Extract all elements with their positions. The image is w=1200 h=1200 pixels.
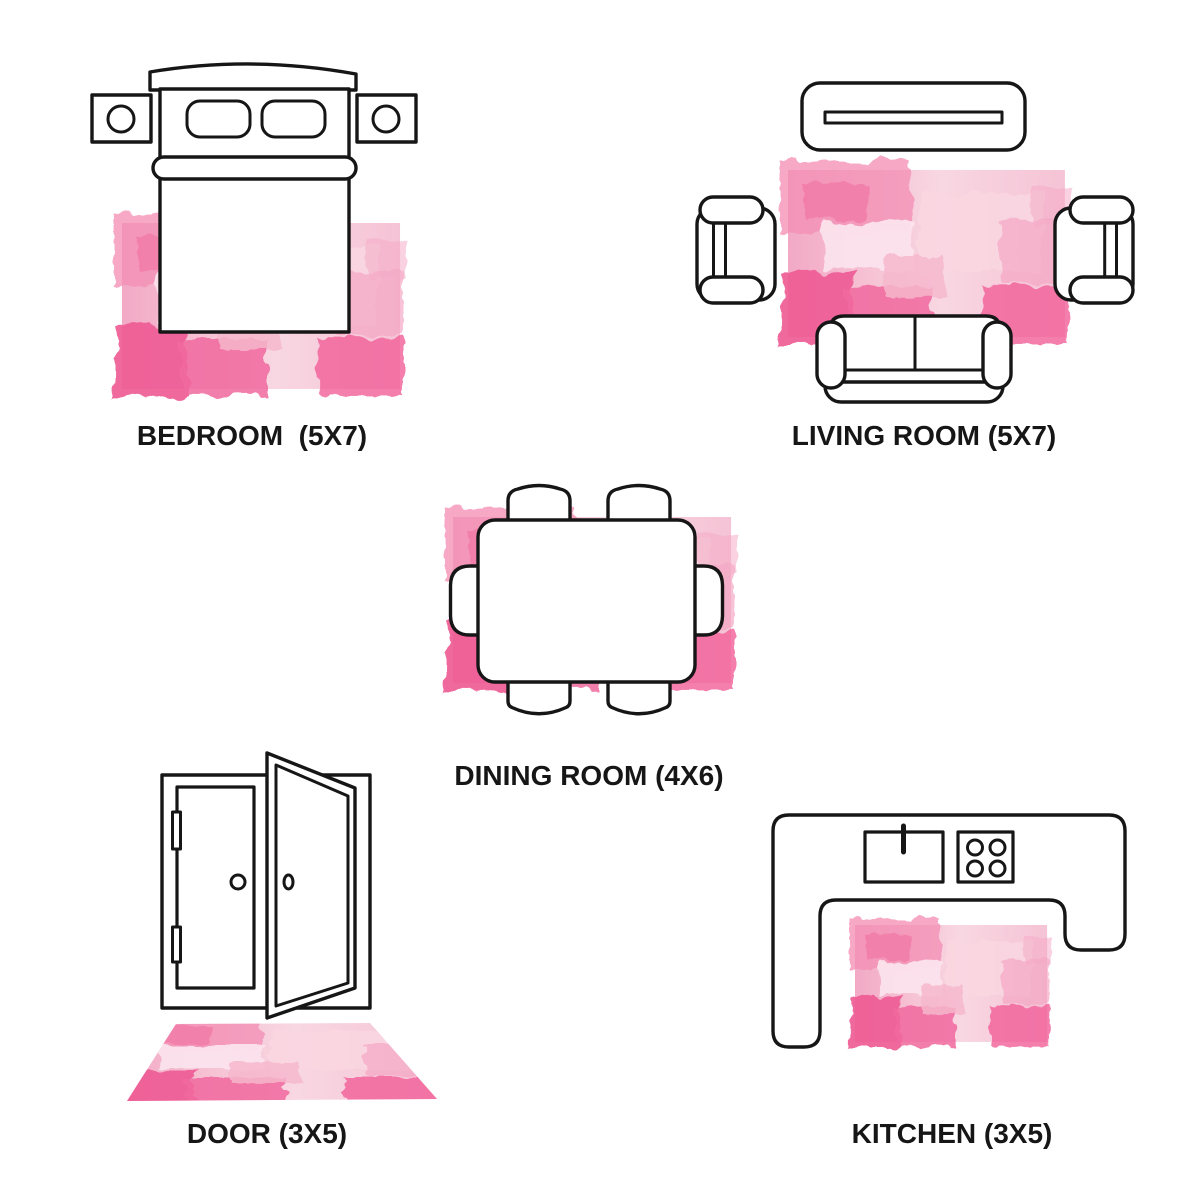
living-room-diagram	[697, 83, 1133, 402]
dining-room-diagram	[445, 486, 737, 714]
dining-room-label: DINING ROOM (4X6)	[454, 761, 723, 791]
nightstand-left-icon	[92, 95, 151, 142]
door-rug-image	[109, 1015, 447, 1107]
nightstand-right-icon	[357, 95, 416, 142]
sink-icon	[865, 826, 943, 882]
stove-icon	[958, 832, 1013, 882]
bedroom-diagram	[92, 64, 416, 397]
open-door-panel-icon	[267, 753, 355, 1018]
armchair-left-icon	[697, 197, 775, 303]
rug-size-guide-canvas: BEDROOM (5X7) LIVING ROOM (5X7) DINING R…	[0, 0, 1200, 1200]
bedroom-label: BEDROOM (5X7)	[137, 421, 367, 451]
size-guide-illustration	[0, 0, 1200, 1200]
kitchen-rug-image	[850, 919, 1052, 1047]
armchair-right-icon	[1055, 197, 1133, 303]
dining-table-icon	[478, 520, 695, 682]
door-diagram	[109, 753, 447, 1107]
living-room-label: LIVING ROOM (5X7)	[792, 421, 1056, 451]
kitchen-label: KITCHEN (3X5)	[852, 1119, 1053, 1149]
kitchen-diagram	[773, 815, 1125, 1047]
sofa-icon	[817, 316, 1011, 402]
console-table-icon	[802, 83, 1025, 150]
door-knob-icon	[231, 875, 245, 889]
door-label: DOOR (3X5)	[187, 1119, 347, 1149]
bed-icon	[150, 64, 356, 332]
closed-door-panel-icon	[173, 787, 255, 988]
